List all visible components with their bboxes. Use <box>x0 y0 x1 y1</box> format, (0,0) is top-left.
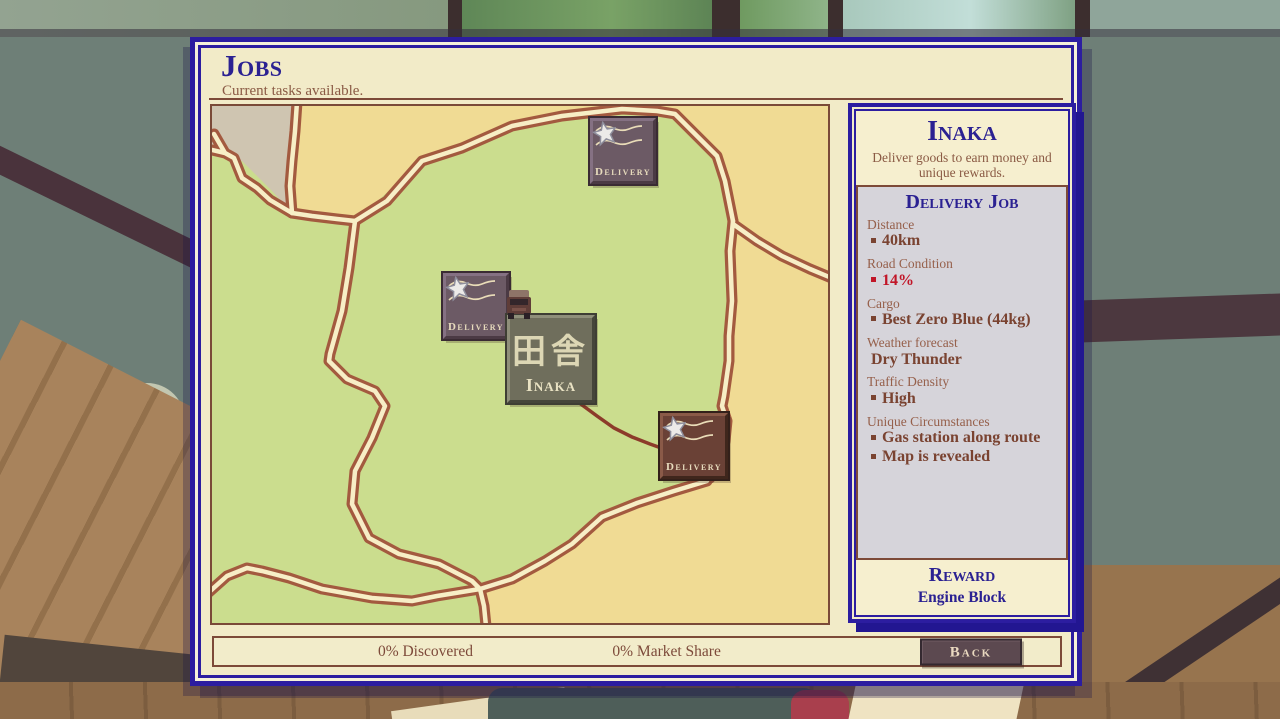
reward-title: Reward <box>860 564 1064 587</box>
field-value: High <box>867 390 1057 409</box>
world-map: Delivery Delivery <box>210 104 830 625</box>
town-name: Inaka <box>510 375 592 396</box>
bullet-icon <box>871 435 876 440</box>
bullet-icon <box>871 238 876 243</box>
town-title: Inaka <box>862 117 1062 148</box>
bullet-icon <box>871 277 876 282</box>
player-hand <box>848 686 1023 719</box>
marker-label: Delivery <box>593 166 653 178</box>
discovered-stat: 0% Discovered <box>378 643 473 661</box>
dialog-header: Jobs Current tasks available. <box>209 50 1063 100</box>
job-field-traffic: Traffic Density High <box>867 374 1057 408</box>
field-label: Unique Circumstances <box>867 414 1057 430</box>
job-field-cargo: Cargo Best Zero Blue (44kg) <box>867 296 1057 330</box>
job-field-weather: Weather forecast Dry Thunder <box>867 335 1057 369</box>
field-value: Best Zero Blue (44kg) <box>867 311 1057 330</box>
job-field-unique: Unique Circumstances Gas station along r… <box>867 414 1057 467</box>
delivery-job-box: Delivery Job Distance 40km Road Conditio… <box>856 185 1068 560</box>
table-edge <box>488 688 818 719</box>
jobs-dialog-content: Jobs Current tasks available. <box>201 48 1071 675</box>
field-label: Road Condition <box>867 256 1057 272</box>
reward-section: Reward Engine Block <box>856 560 1068 615</box>
market-share-stat: 0% Market Share <box>612 643 720 661</box>
page-subtitle: Current tasks available. <box>222 83 363 100</box>
jobs-dialog: Jobs Current tasks available. <box>190 37 1082 686</box>
field-value: Map is revealed <box>867 448 1057 467</box>
map-marker-delivery-south[interactable]: Delivery <box>660 413 728 479</box>
field-label: Traffic Density <box>867 374 1057 390</box>
window-sill <box>0 29 1280 37</box>
bullet-icon <box>871 395 876 400</box>
window-frame-right <box>1071 293 1280 342</box>
star-badge-icon <box>444 274 472 302</box>
job-field-road-condition: Road Condition 14% <box>867 256 1057 290</box>
page-title: Jobs <box>221 48 283 84</box>
job-title: Delivery Job <box>867 191 1057 214</box>
field-value: 40km <box>867 232 1057 251</box>
player-sleeve <box>791 690 849 719</box>
player-truck-icon <box>506 289 532 321</box>
reward-value: Engine Block <box>860 589 1064 607</box>
panel-header: Inaka Deliver goods to earn money and un… <box>856 111 1068 185</box>
map-marker-delivery-west[interactable]: Delivery <box>443 273 509 339</box>
star-badge-icon <box>591 119 619 147</box>
status-bar: 0% Discovered 0% Market Share Back <box>212 636 1062 667</box>
back-button[interactable]: Back <box>920 638 1022 665</box>
star-badge-icon <box>661 414 689 442</box>
bullet-icon <box>871 316 876 321</box>
job-field-distance: Distance 40km <box>867 217 1057 251</box>
field-label: Cargo <box>867 296 1057 312</box>
field-label: Weather forecast <box>867 335 1057 351</box>
town-description: Deliver goods to earn money and unique r… <box>871 150 1053 181</box>
marker-label: Delivery <box>663 461 725 473</box>
job-details-panel: Inaka Deliver goods to earn money and un… <box>848 103 1076 623</box>
field-value: Gas station along route <box>867 429 1057 448</box>
game-screen: Jobs Current tasks available. <box>0 0 1280 719</box>
field-value: Dry Thunder <box>867 351 1057 370</box>
marker-label: Delivery <box>446 321 506 333</box>
field-label: Distance <box>867 217 1057 233</box>
town-sign-inaka[interactable]: 田舎 Inaka <box>507 315 595 403</box>
town-kanji: 田舎 <box>510 324 592 373</box>
map-marker-delivery-north[interactable]: Delivery <box>590 118 656 184</box>
bullet-icon <box>871 454 876 459</box>
field-value: 14% <box>867 272 1057 291</box>
